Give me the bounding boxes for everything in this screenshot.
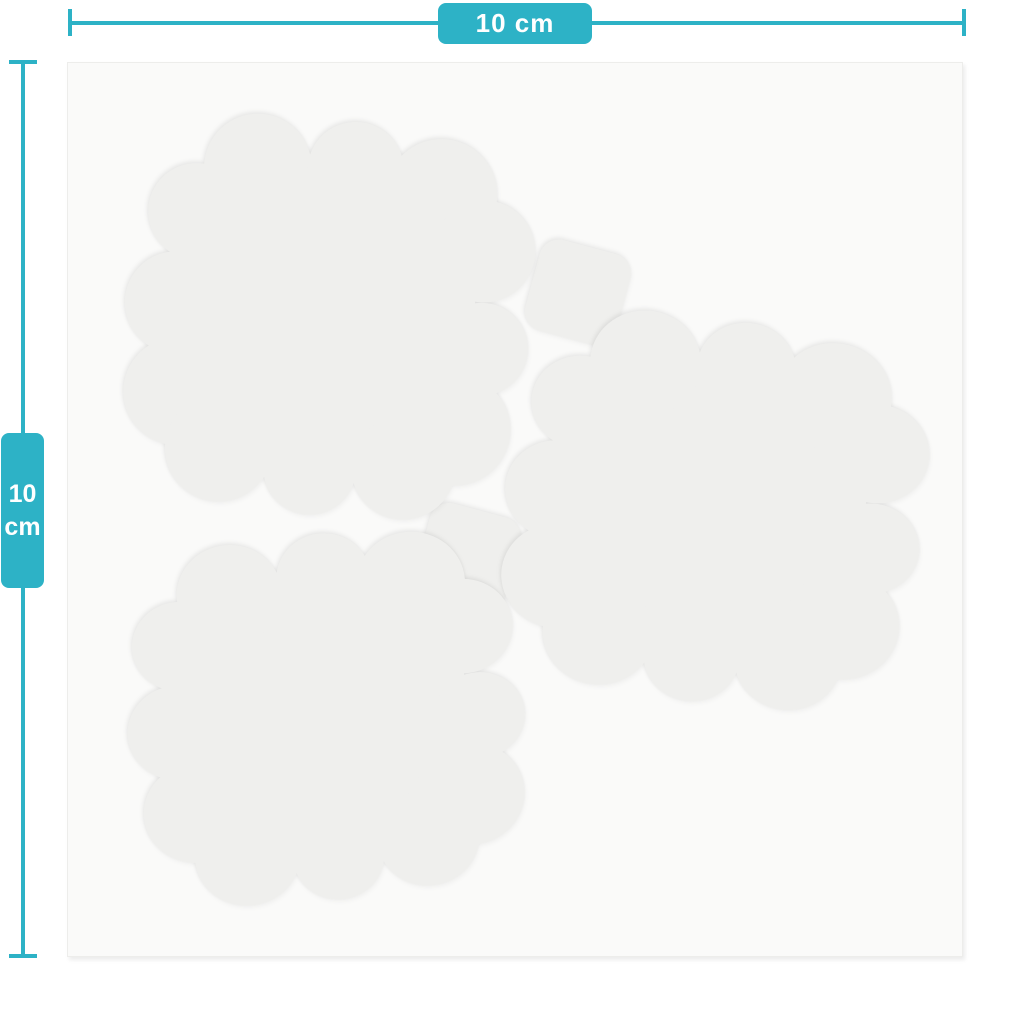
vertical-dimension-label: 10 cm [1, 433, 44, 588]
horizontal-dimension-tick-left [68, 9, 72, 36]
vertical-dimension-value: 10 [9, 478, 37, 511]
vertical-dimension-tick-top [9, 60, 37, 64]
pad-shapes-graphic [68, 63, 962, 956]
gel-pad-right [476, 289, 950, 733]
horizontal-dimension-tick-right [962, 9, 966, 36]
vertical-dimension-unit: cm [4, 511, 40, 544]
horizontal-dimension-label: 10 cm [438, 3, 592, 44]
backing-sheet [67, 62, 963, 957]
product-dimension-image: 10 cm 10 cm [0, 0, 1024, 1024]
pads-group [101, 96, 950, 916]
vertical-dimension-tick-bottom [9, 954, 37, 958]
gel-pad-top-left [101, 96, 553, 539]
